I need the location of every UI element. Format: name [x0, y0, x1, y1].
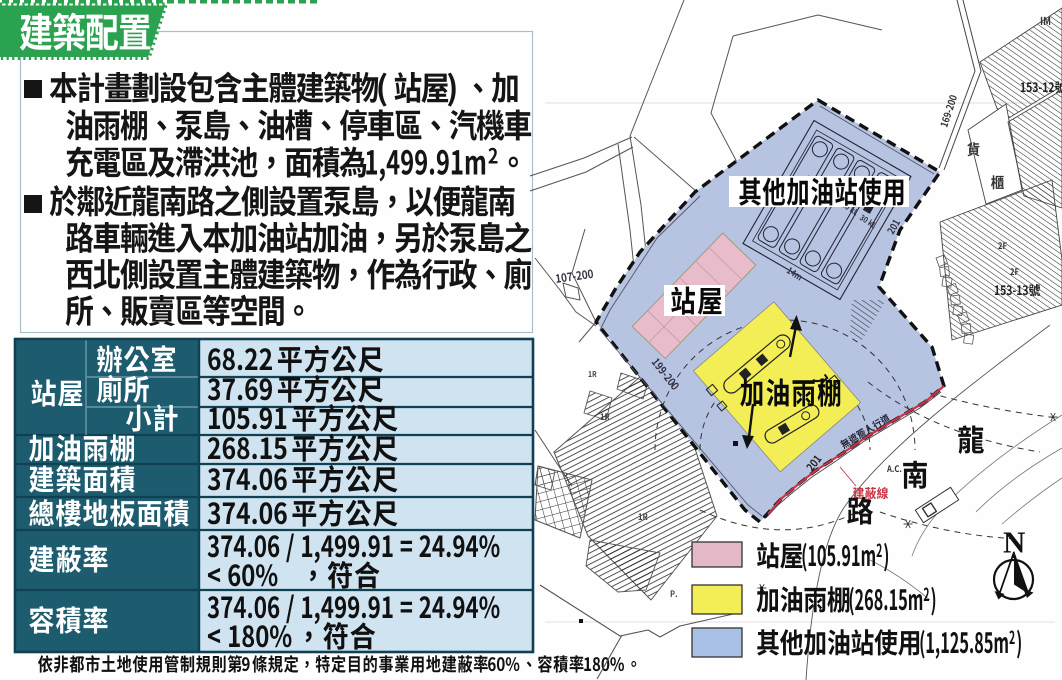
svg-text:N: N	[1003, 525, 1025, 560]
